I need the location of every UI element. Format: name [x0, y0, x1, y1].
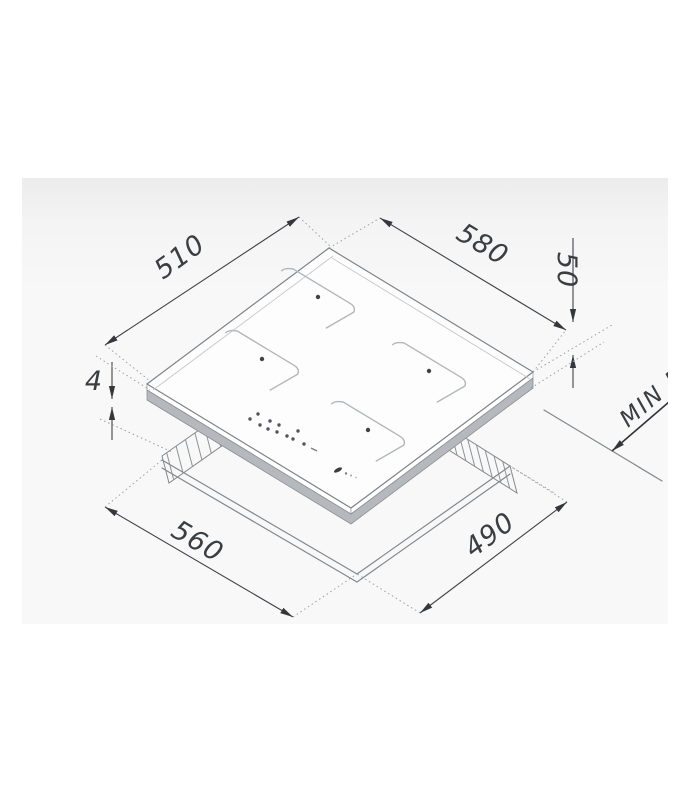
hob — [147, 248, 533, 524]
dim-50-label: 50 — [551, 252, 582, 288]
dim-580-label: 580 — [451, 217, 514, 272]
dim-490-label: 490 — [459, 506, 521, 564]
zone-center-dot — [366, 428, 370, 432]
dim-min-label: MIN 5 — [615, 364, 668, 433]
dim-510-label: 510 — [149, 229, 211, 286]
dim-4-label: 4 — [85, 366, 103, 397]
hob-installation-diagram: 510 580 50 — [22, 178, 668, 624]
diagram-panel: 510 580 50 — [22, 178, 668, 624]
screenshot: 510 580 50 — [0, 0, 700, 800]
zone-center-dot — [260, 357, 264, 361]
zone-center-dot — [316, 295, 320, 299]
dim-min-clearance: MIN 5 — [510, 364, 668, 494]
dim-50: 50 — [531, 238, 612, 388]
zone-center-dot — [427, 369, 431, 373]
